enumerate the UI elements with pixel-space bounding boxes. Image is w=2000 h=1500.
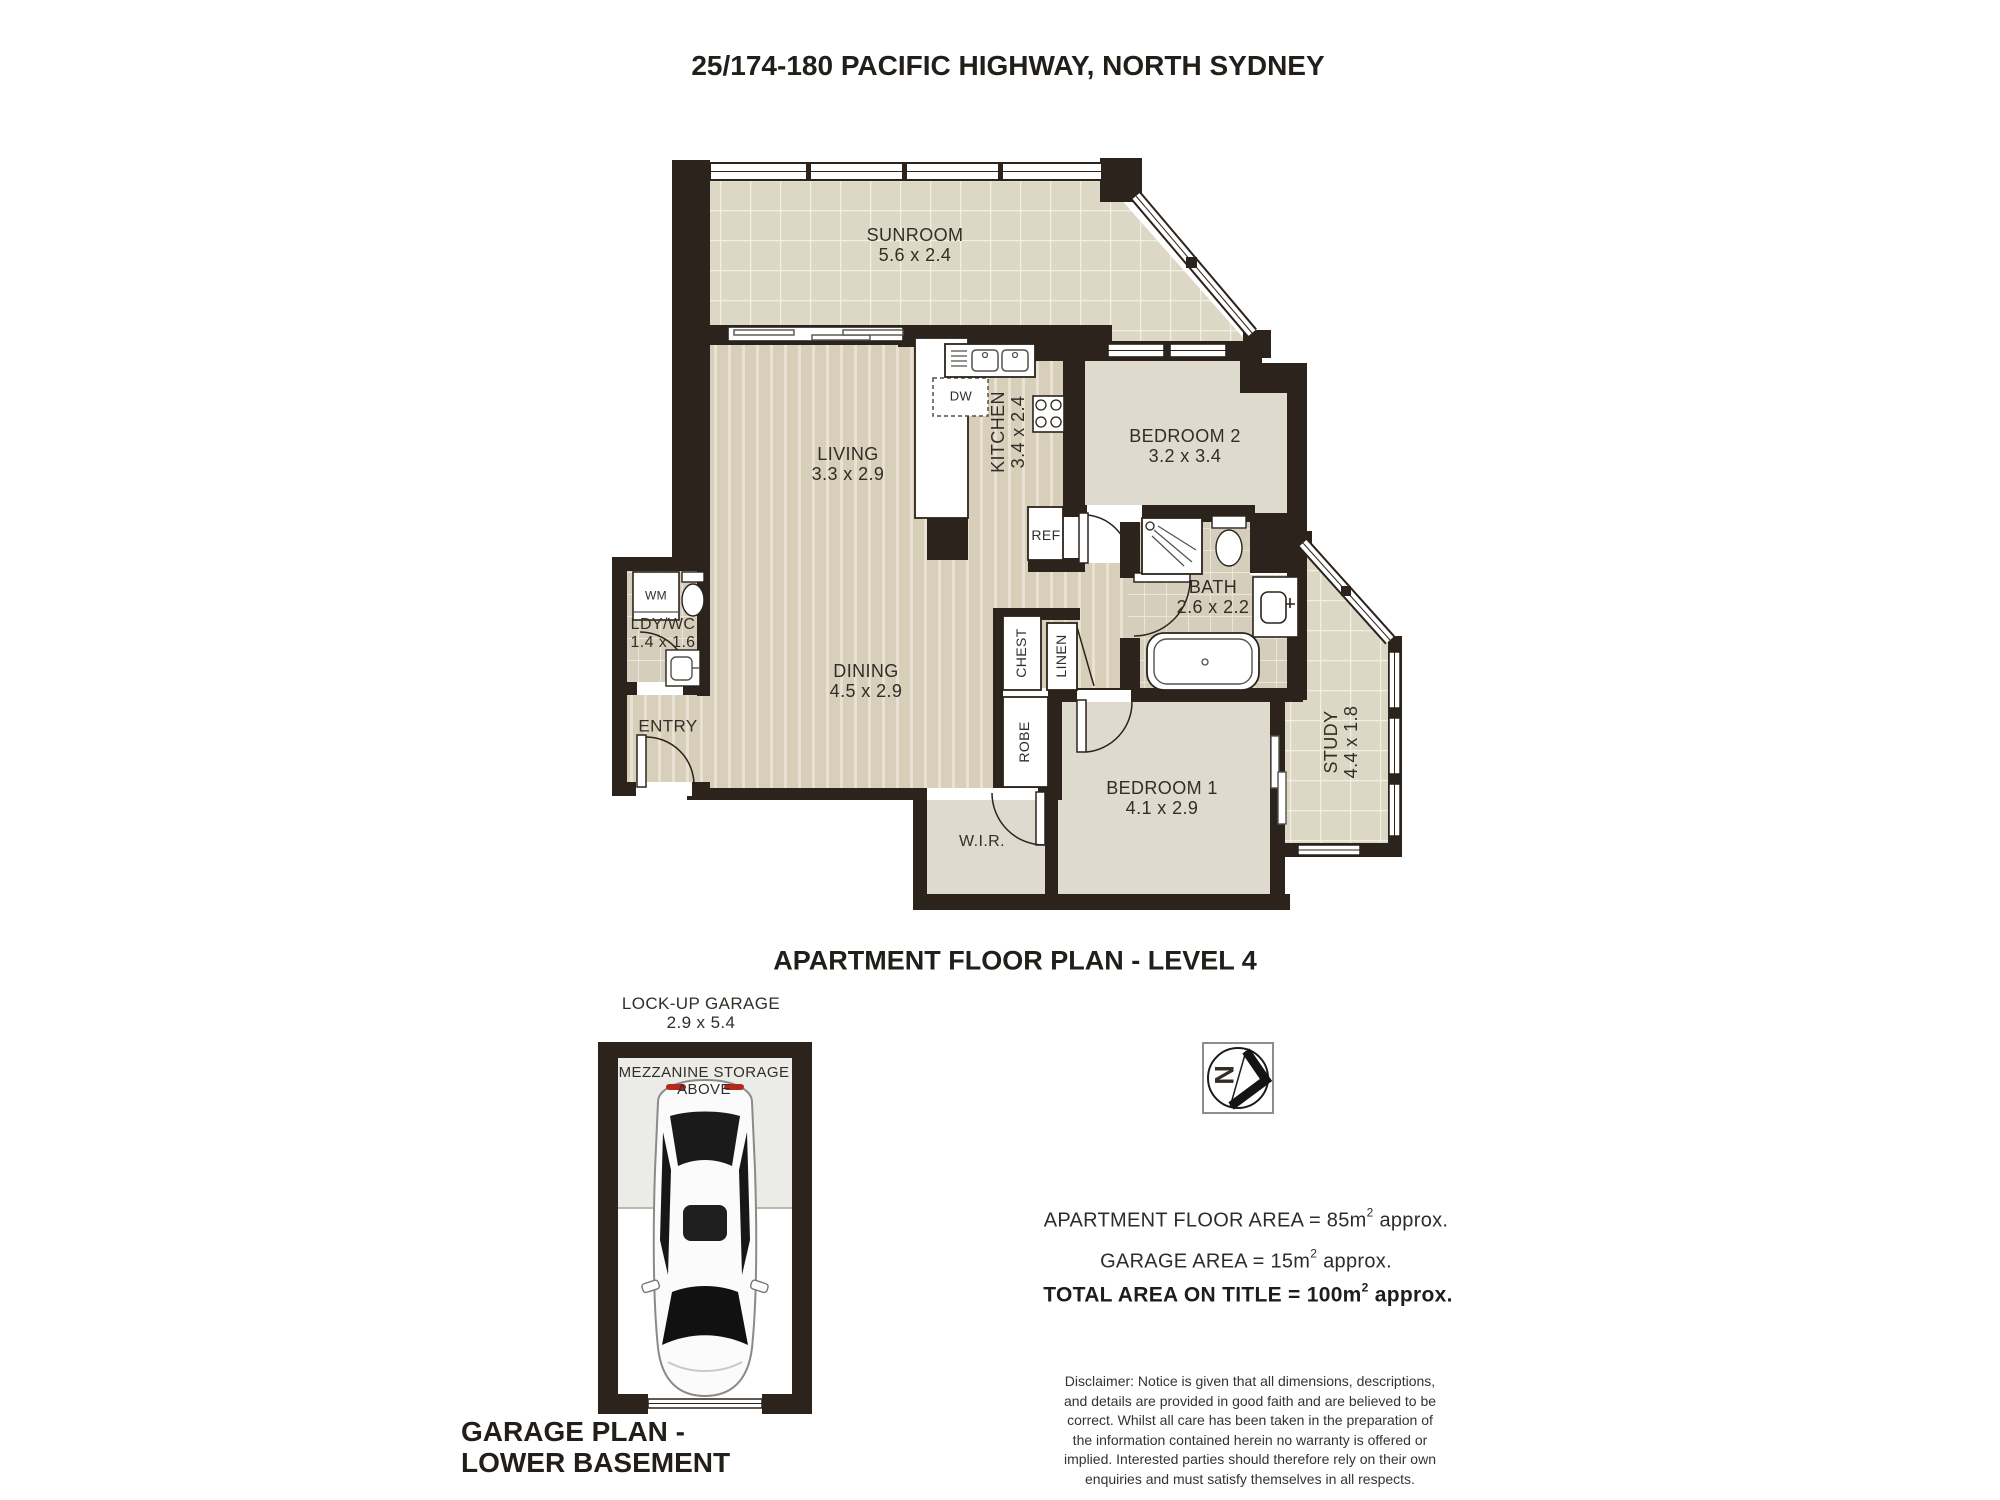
laundry-basin-icon [666,650,700,686]
appliance-label-fridge: REF [1031,528,1060,544]
shower-icon [1142,518,1202,574]
kitchen-sink-icon [945,344,1035,377]
room-label-wir: W.I.R. [959,833,1005,851]
page-title: 25/174-180 PACIFIC HIGHWAY, NORTH SYDNEY [691,50,1324,82]
car-icon [641,1080,769,1396]
vanity-icon [1253,577,1298,637]
garage-area-text: GARAGE AREA = 15m2 approx. [1100,1249,1392,1274]
room-label-bedroom1: BEDROOM 1 4.1 x 2.9 [1106,778,1218,818]
room-label-sunroom: SUNROOM 5.6 x 2.4 [867,225,964,265]
floor-plan-page: 25/174-180 PACIFIC HIGHWAY, NORTH SYDNEY… [0,0,2000,1500]
room-label-entry: ENTRY [638,716,697,735]
stove-icon [1033,396,1064,432]
disclaimer: Disclaimer: Notice is given that all dim… [1064,1372,1436,1489]
room-label-bedroom2: BEDROOM 2 3.2 x 3.4 [1129,426,1241,466]
compass-north-letter: N [1209,1065,1239,1085]
bathtub-icon [1147,633,1259,690]
sunroom-floor [710,180,1247,342]
closet-label-robe: ROBE [1017,721,1033,762]
mezzanine-storage-label: MEZZANINE STORAGE ABOVE [619,1065,790,1099]
appliance-label-washing-machine: WM [645,589,667,602]
closet-label-chest: CHEST [1014,628,1030,677]
room-label-study: STUDY 4.4 x 1.8 [1321,706,1361,779]
garage-plan-caption: GARAGE PLAN - LOWER BASEMENT [461,1417,941,1479]
apartment-area-text: APARTMENT FLOOR AREA = 85m2 approx. [1044,1208,1449,1233]
total-area-text: TOTAL AREA ON TITLE = 100m2 approx. [1043,1283,1452,1308]
apartment-plan-caption: APARTMENT FLOOR PLAN - LEVEL 4 [773,946,1257,977]
room-label-bath: BATH 2.6 x 2.2 [1177,577,1250,617]
laundry-toilet-icon [682,572,704,616]
closet-label-linen: LINEN [1054,634,1070,677]
room-label-laundry-wc: LDY/WC 1.4 x 1.6 [631,616,696,652]
floor-plan-graphic [0,0,2000,1500]
room-label-kitchen: KITCHEN 3.4 x 2.4 [988,391,1028,473]
room-label-dining: DINING 4.5 x 2.9 [830,661,903,701]
appliance-label-dishwasher: DW [950,390,972,405]
garage-label: LOCK-UP GARAGE 2.9 x 5.4 [622,994,780,1032]
room-label-living: LIVING 3.3 x 2.9 [812,444,885,484]
